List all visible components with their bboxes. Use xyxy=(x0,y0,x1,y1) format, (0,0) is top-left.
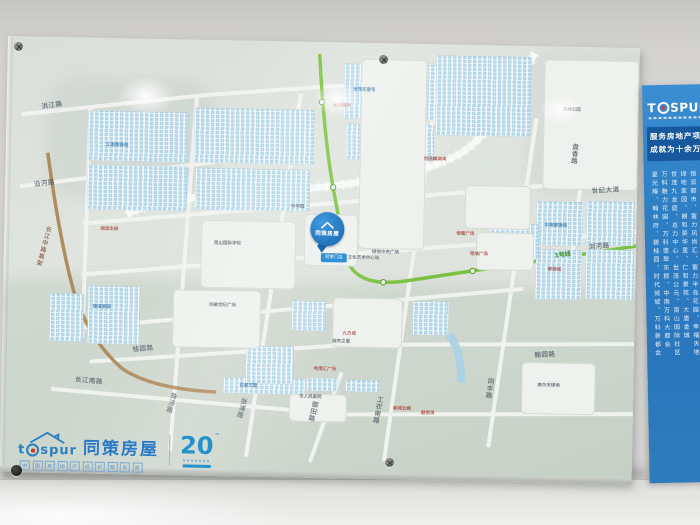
house-icon xyxy=(320,221,334,229)
boxed-char: 务 xyxy=(120,462,130,472)
boxed-char: 经 xyxy=(82,462,92,472)
tospur-latin-text: t spur xyxy=(18,443,77,457)
screw-icon xyxy=(379,55,388,64)
boxed-char: 地 xyxy=(57,461,67,471)
cn-brand-text: 同策房屋 xyxy=(83,441,159,459)
banner-slogan-box: 服务房地产项目超 成就为十余万人安 xyxy=(647,126,700,161)
banner-tagline xyxy=(649,116,700,119)
tospur-o-icon xyxy=(657,102,669,114)
wall-light xyxy=(0,485,300,525)
slogan-line: 成就为十余万人安 xyxy=(650,143,700,157)
anniversary-20-logo: 20™ xyxy=(180,433,214,468)
anniversary-number: 20™ xyxy=(180,433,214,458)
board-logo-row: t spur 同策房屋 中 国 房 地 产 经 纪 服 务 xyxy=(18,430,214,474)
marker-title: 同策房屋 xyxy=(315,229,339,237)
tospur-o-icon xyxy=(26,443,39,456)
anniversary-bar xyxy=(182,464,210,468)
tospur-logo-sidebar: T SPUR xyxy=(647,100,700,115)
anniversary-text: 20 xyxy=(180,431,214,460)
boxed-char: 纪 xyxy=(95,462,105,472)
boxed-slogan: 中 国 房 地 产 经 纪 服 务 商 xyxy=(20,460,159,473)
boxed-char: 商 xyxy=(132,462,142,472)
logo-divider xyxy=(169,435,171,465)
marker-badge: 同策门店 xyxy=(321,253,347,262)
project-column: 恒派都市、富力风尚汇、富力半岛花园、幸福天地 xyxy=(688,170,700,450)
slogan-line: 服务房地产项目超 xyxy=(650,130,700,144)
mount-bolt-icon xyxy=(11,465,22,476)
tospur-logo: t spur xyxy=(18,430,77,457)
screw-icon xyxy=(385,458,394,467)
screw-icon xyxy=(14,42,23,51)
boxed-char: 产 xyxy=(70,461,80,471)
map-board: 洪江路沿河路长江中路高架桂园路长江南路珠泾路张浦路御田路工农南路同丰路翰园路世纪… xyxy=(0,36,640,484)
project-name-columns: 星光耀、翰林府、碧桂园、时代倾城、万科新都会 万科魅力花园、万科翡翠东郡、中南万… xyxy=(650,169,700,450)
tospur-banner: T SPUR 服务房地产项目超 成就为十余万人安 星光耀、翰林府、碧桂园、时代倾… xyxy=(642,84,700,483)
tospur-logo-block: t spur 同策房屋 中 国 房 地 产 经 纪 服 务 xyxy=(18,430,160,473)
boxed-char: 房 xyxy=(45,461,55,471)
photo-of-map-board: 洪江路沿河路长江中路高架桂园路长江南路珠泾路张浦路御田路工农南路同丰路翰园路世纪… xyxy=(0,0,700,525)
brand-letters: spur xyxy=(40,444,77,458)
tm-mark: ™ xyxy=(215,434,220,439)
boxed-char: 服 xyxy=(107,462,117,472)
brand-letter: T xyxy=(647,101,656,115)
brand-letters: SPUR xyxy=(670,100,700,115)
brand-letter: t xyxy=(18,443,25,456)
boxed-char: 国 xyxy=(32,461,42,471)
